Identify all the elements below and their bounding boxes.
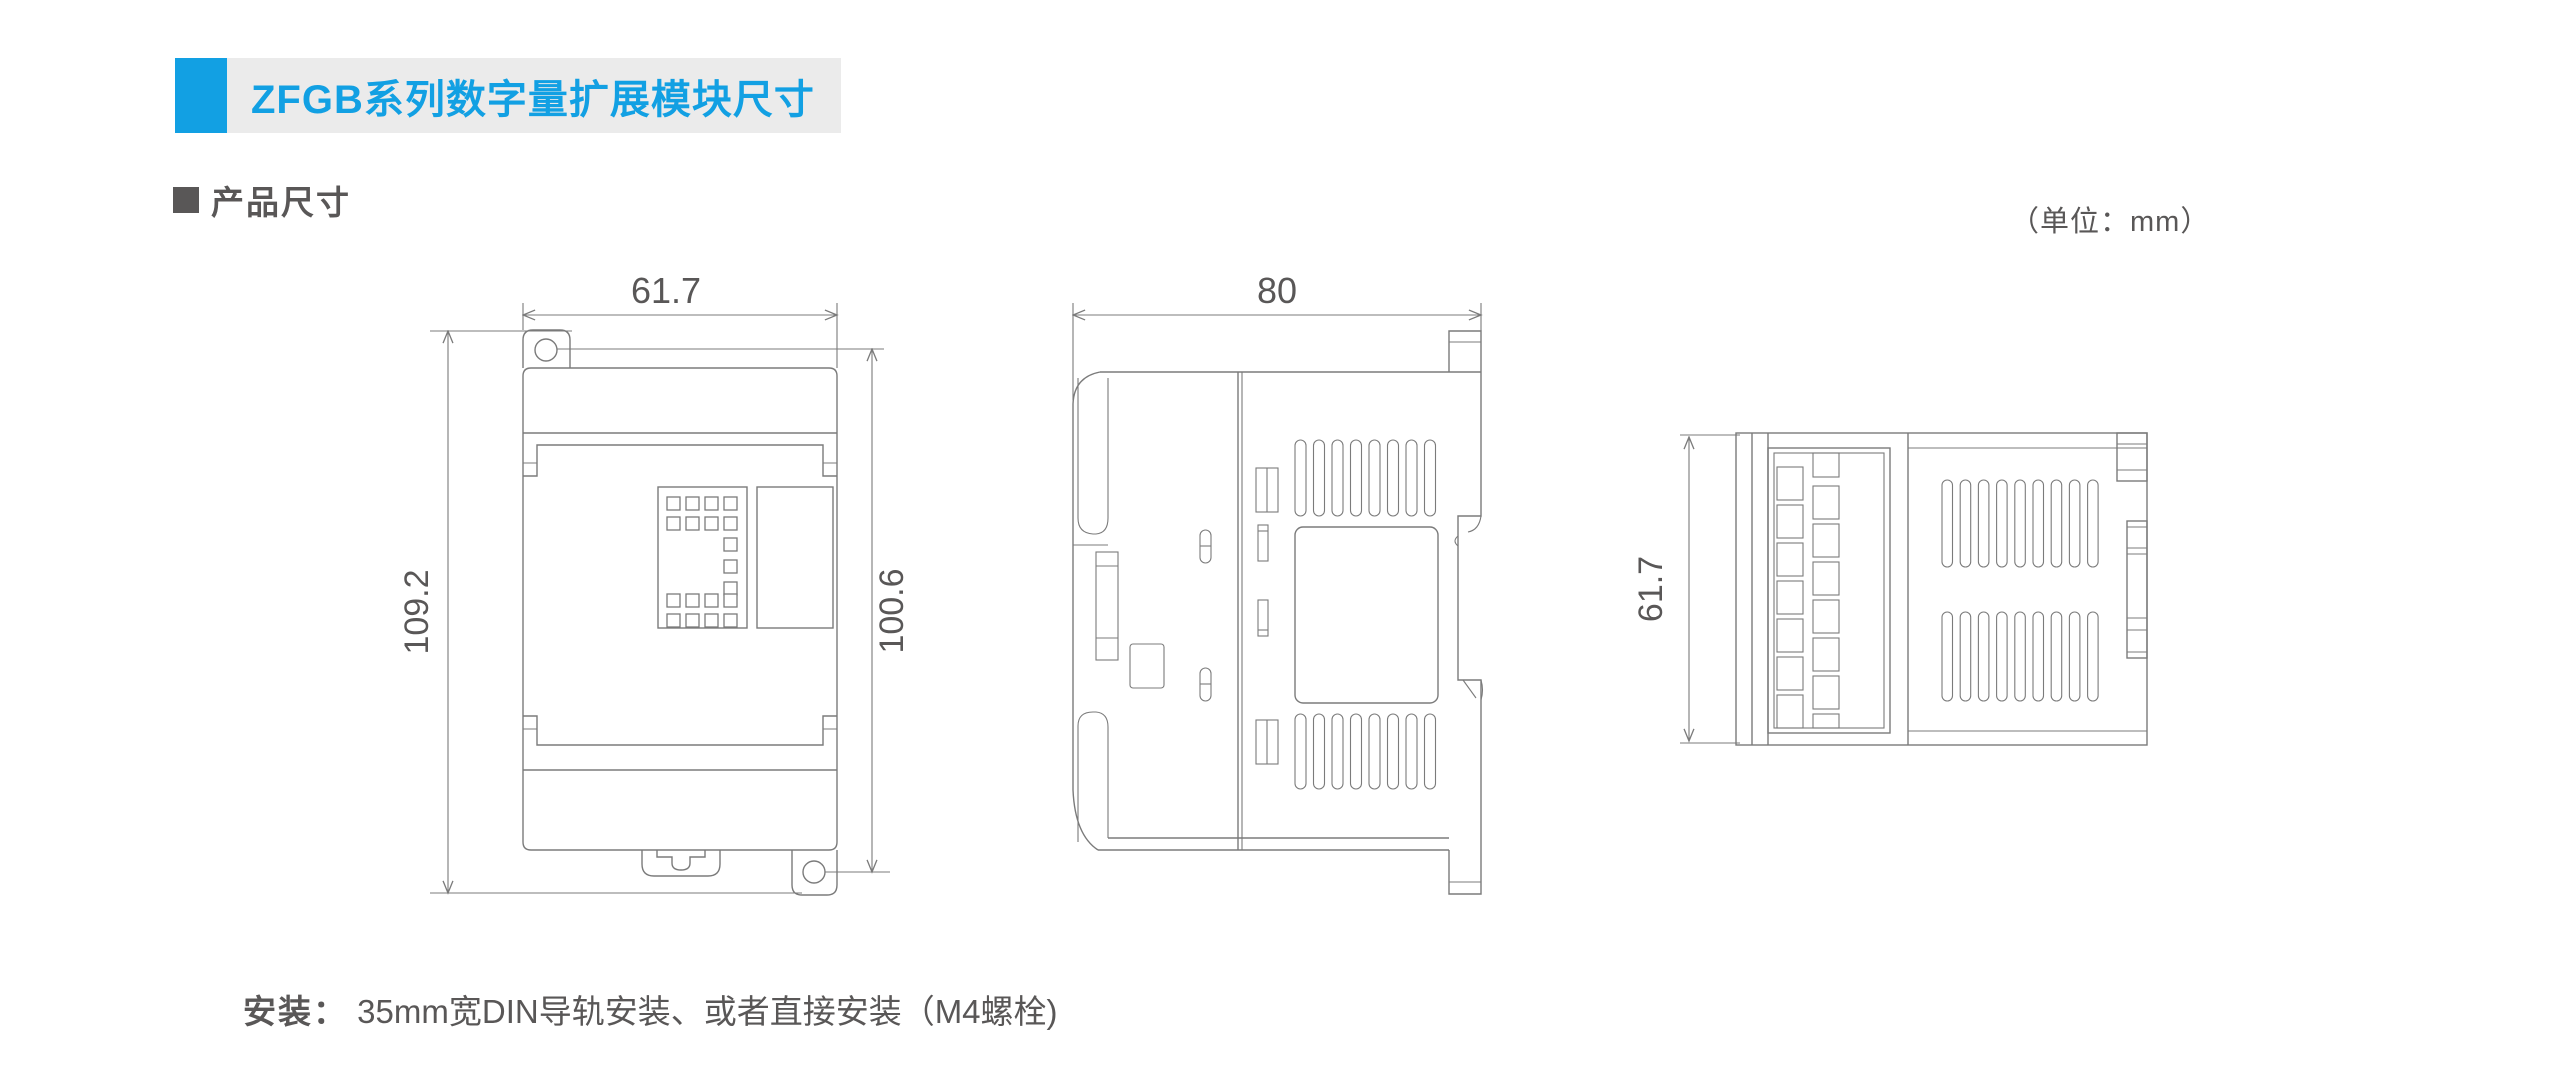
end-height-dim: 61.7 [1632, 556, 1670, 622]
dimension-drawing: 61.7 109.2 100.6 [0, 0, 2552, 1068]
end-terminal-teeth [1777, 453, 1839, 728]
side-depth-dim: 80 [1257, 270, 1297, 311]
front-view: 61.7 109.2 100.6 [398, 270, 911, 895]
side-vent-slots-bottom [1295, 714, 1436, 789]
front-terminal-grid [667, 497, 737, 627]
install-note-text: 35mm宽DIN导轨安装、或者直接安装（M4螺栓) [357, 993, 1057, 1030]
side-view: 80 [1073, 270, 1483, 894]
front-overall-height-dim: 109.2 [398, 569, 436, 654]
install-note-label: 安装： [243, 993, 348, 1030]
page: ZFGB系列数字量扩展模块尺寸 产品尺寸 （单位：mm） 61.7 109.2 [0, 0, 2552, 1068]
front-mount-height-dim: 100.6 [873, 568, 911, 653]
side-vent-slots-top [1295, 440, 1436, 516]
install-note: 安装： 35mm宽DIN导轨安装、或者直接安装（M4螺栓) [243, 985, 1058, 1033]
end-view: 61.7 [1632, 433, 2147, 745]
end-vent-slots-top [1942, 480, 2098, 567]
end-vent-slots-bottom [1942, 612, 2098, 701]
front-width-dim: 61.7 [631, 270, 701, 311]
